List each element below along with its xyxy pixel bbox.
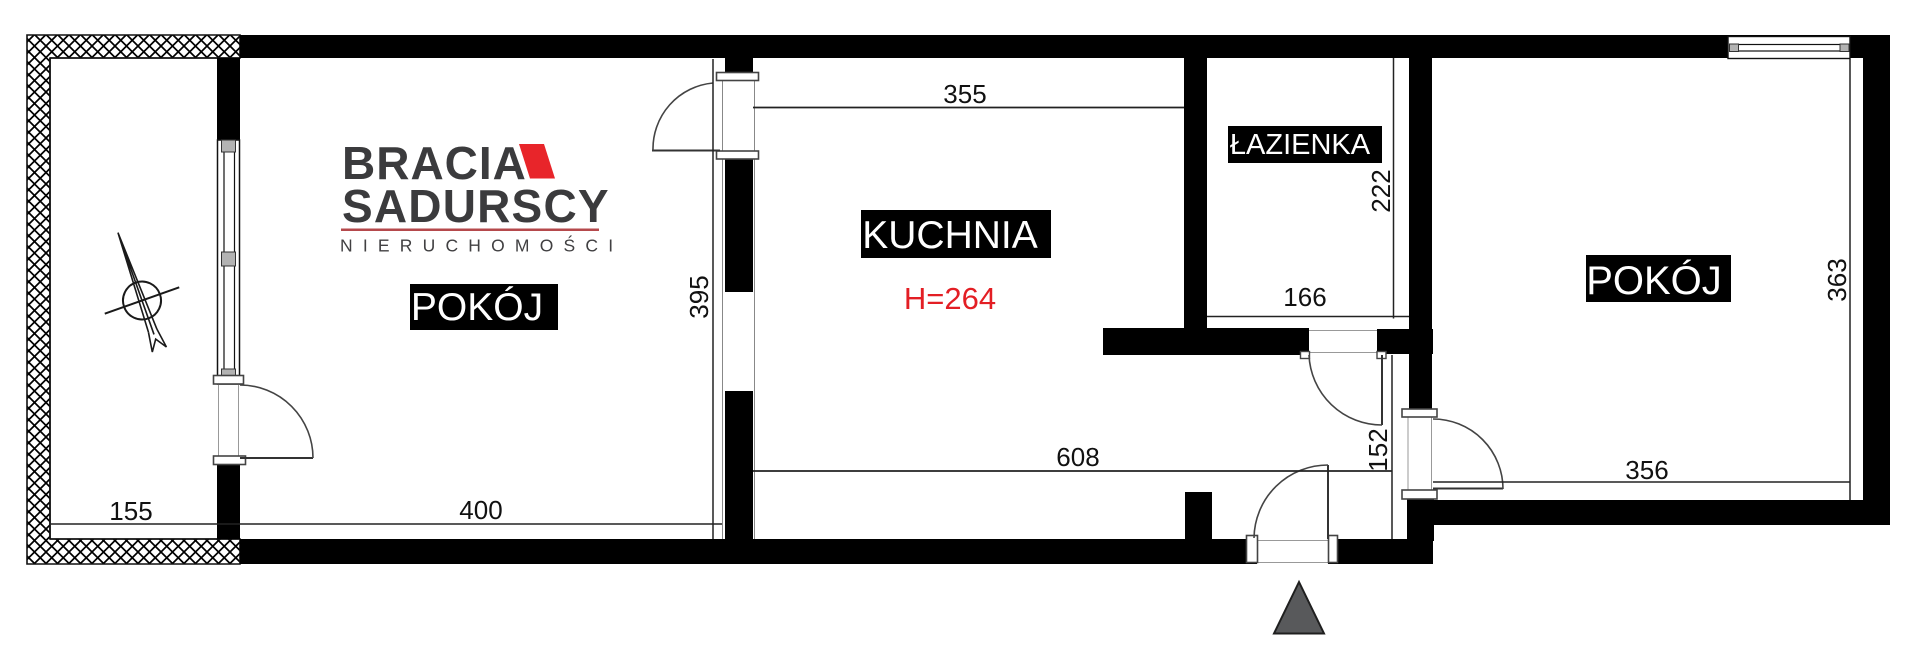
svg-text:395: 395 — [684, 275, 714, 318]
svg-text:222: 222 — [1366, 169, 1396, 212]
svg-text:355: 355 — [943, 79, 986, 109]
svg-text:H=264: H=264 — [904, 281, 996, 316]
svg-text:ŁAZIENKA: ŁAZIENKA — [1230, 129, 1371, 161]
svg-text:NIERUCHOMOŚCI: NIERUCHOMOŚCI — [340, 235, 623, 256]
svg-text:356: 356 — [1625, 455, 1668, 485]
svg-text:POKÓJ: POKÓJ — [411, 286, 543, 329]
svg-text:POKÓJ: POKÓJ — [1586, 258, 1722, 303]
svg-text:608: 608 — [1056, 442, 1099, 472]
svg-text:152: 152 — [1363, 428, 1393, 471]
svg-text:SADURSCY: SADURSCY — [342, 180, 610, 232]
svg-text:400: 400 — [459, 495, 502, 525]
svg-text:KUCHNIA: KUCHNIA — [862, 214, 1038, 257]
svg-text:166: 166 — [1283, 282, 1326, 312]
svg-text:363: 363 — [1822, 258, 1852, 301]
svg-text:155: 155 — [109, 496, 152, 526]
